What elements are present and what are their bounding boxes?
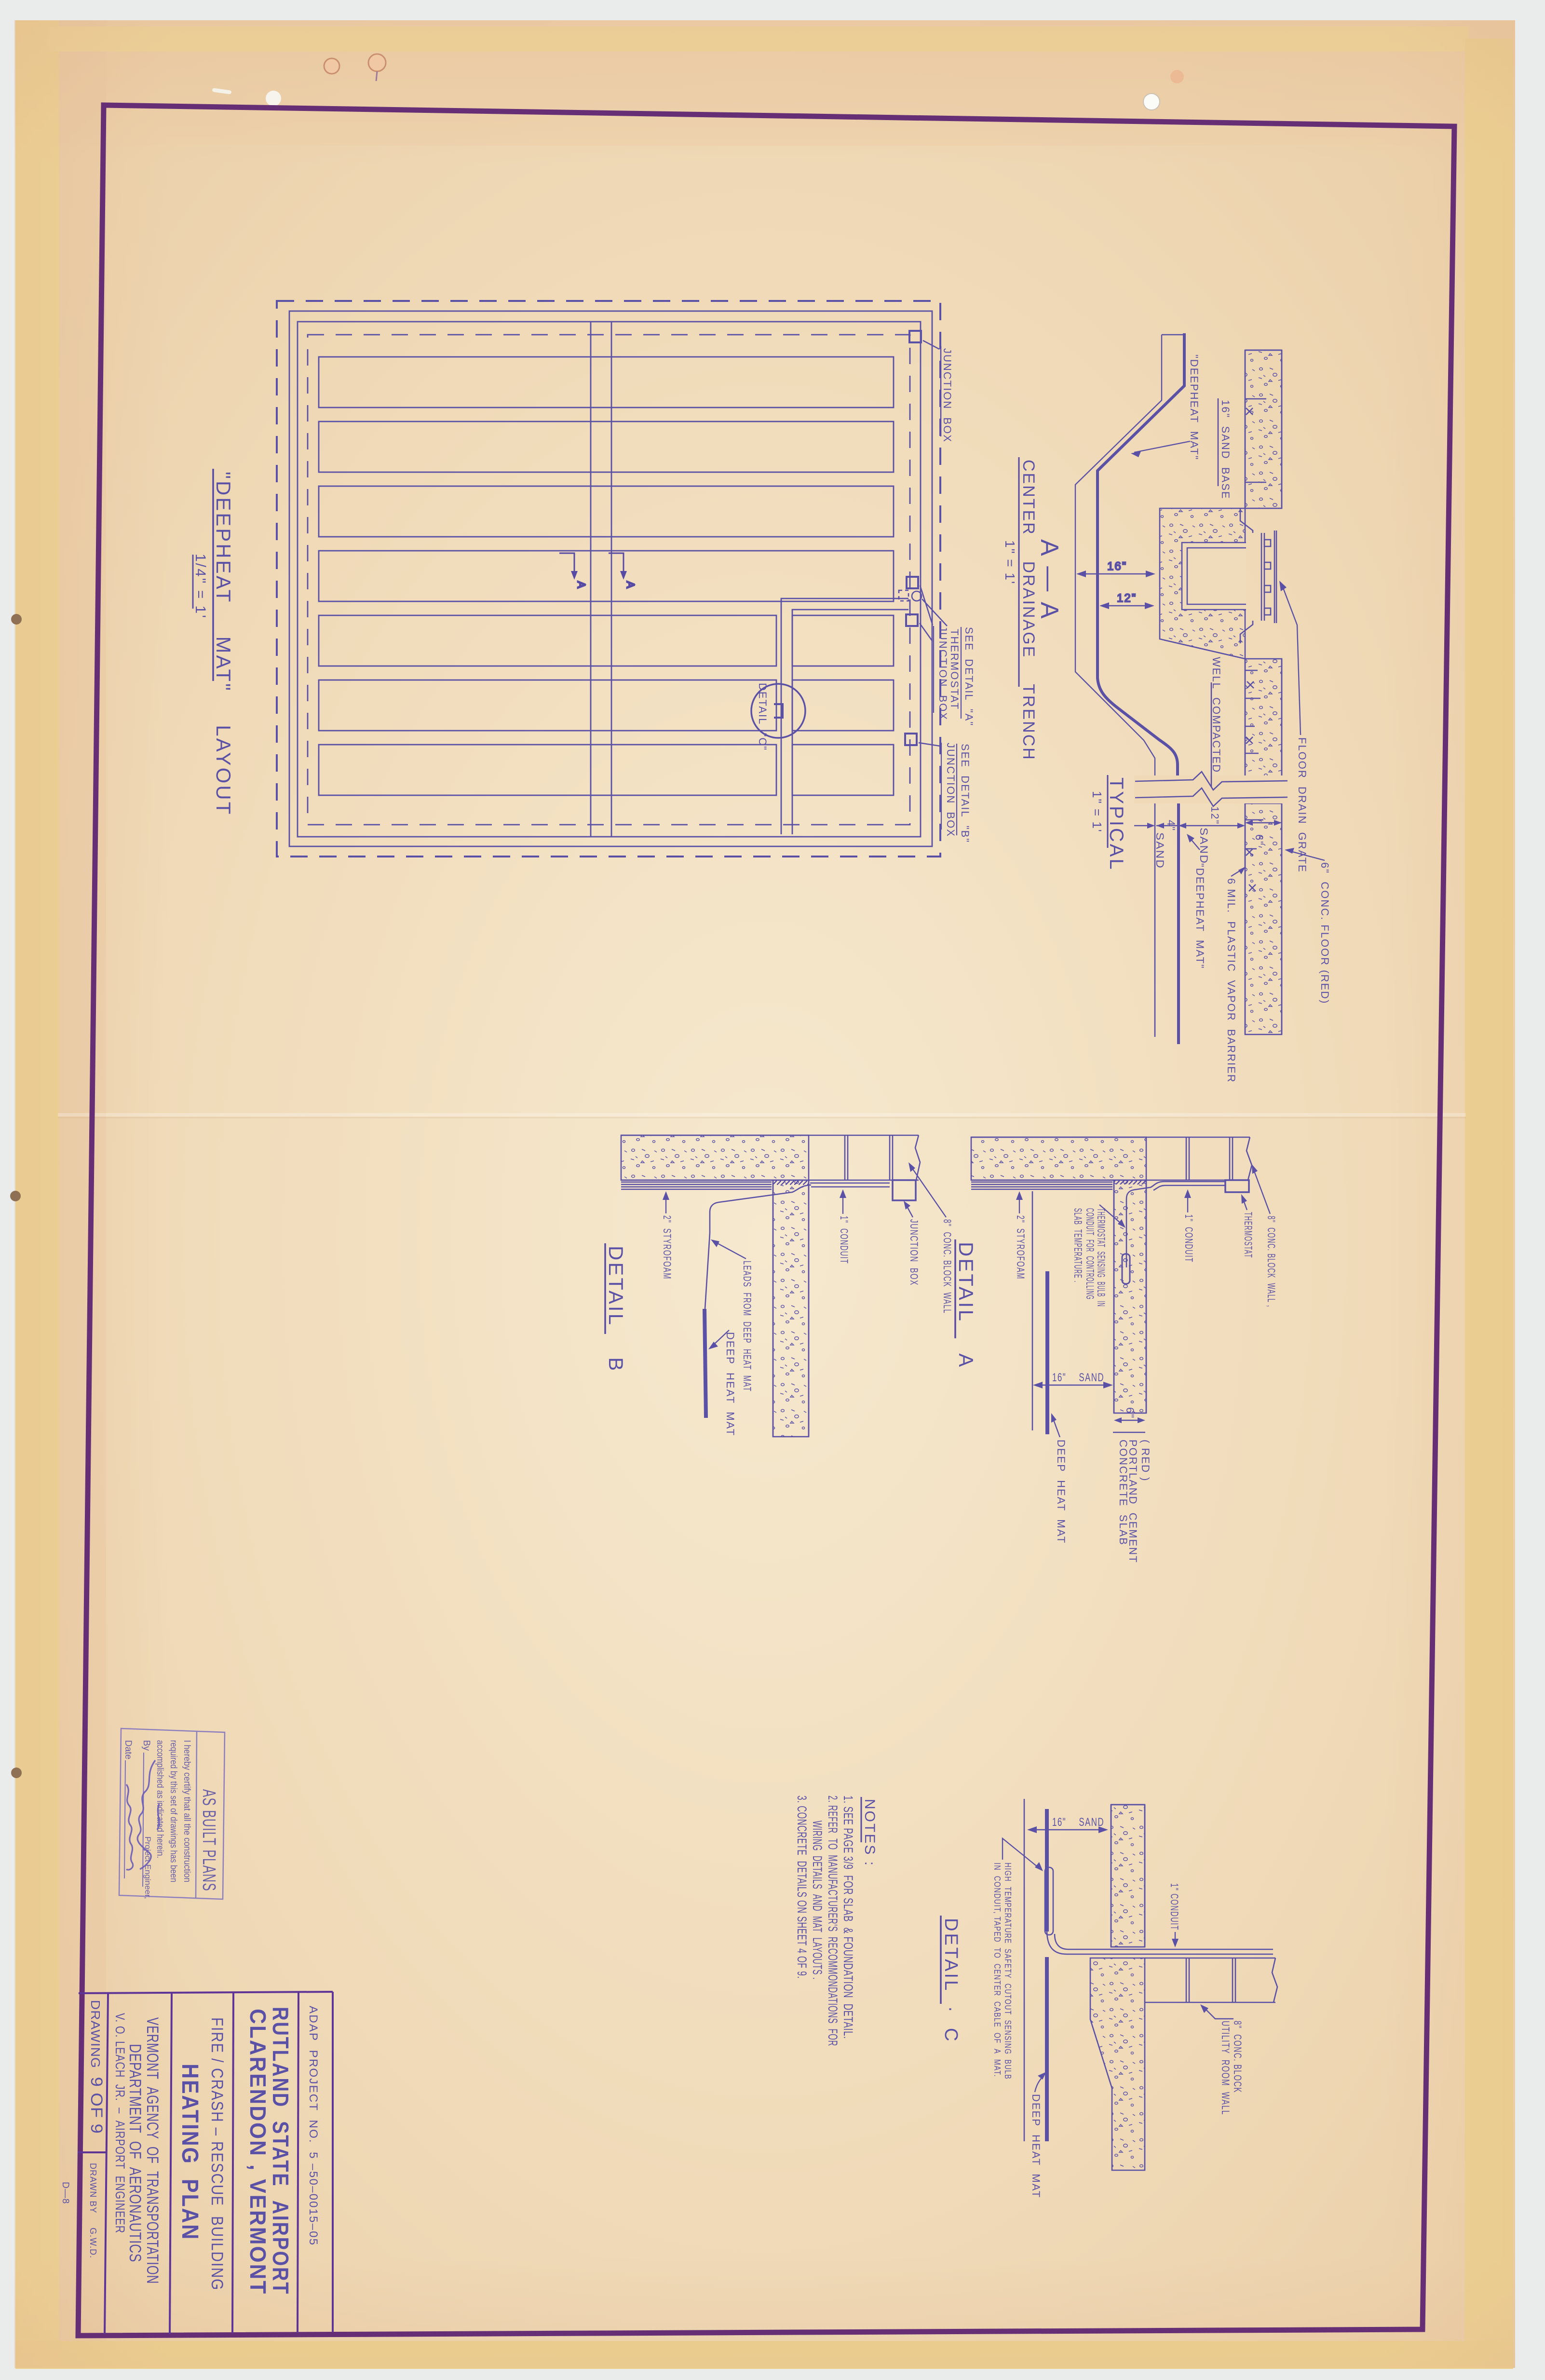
svg-text:VERMONT AGENCY OF TRANSPORT: VERMONT AGENCY OF TRANSPORTATION [143, 2017, 162, 2284]
svg-text:1/4" = 1': 1/4" = 1' [192, 554, 208, 619]
svg-text:DEEP HEAT MAT: DEEP HEAT MAT [724, 1332, 736, 1436]
svg-text:1" CONDUIT: 1" CONDUIT [1183, 1214, 1195, 1263]
svg-text:DETAIL "C": DETAIL "C" [757, 683, 769, 751]
svg-text:A: A [575, 581, 587, 589]
svg-text:2. REFER TO MANUFACTURER'S: 2. REFER TO MANUFACTURER'S RECOMMONDATIO… [826, 1795, 840, 2046]
svg-text:16" SAND: 16" SAND [1052, 1816, 1104, 1829]
svg-text:NOTES :: NOTES : [862, 1799, 878, 1867]
svg-text:DRAWING 9 OF 9: DRAWING 9 OF 9 [87, 2000, 106, 2134]
svg-text:SEE DETAIL "A": SEE DETAIL "A" [963, 627, 975, 726]
svg-text:DETAIL · C: DETAIL · C [941, 1918, 961, 2043]
svg-text:DEPARTMENT OF AERONAUTICS: DEPARTMENT OF AERONAUTICS [126, 2044, 144, 2262]
svg-text:16" SAND: 16" SAND [1052, 1371, 1104, 1384]
svg-text:"DEEPHEAT MAT" LAYOUT: "DEEPHEAT MAT" LAYOUT [212, 472, 235, 816]
svg-text:D—8: D—8 [60, 2182, 70, 2204]
svg-text:12": 12" [1117, 592, 1137, 605]
svg-text:3. CONCRETE DETAILS ON SHEET: 3. CONCRETE DETAILS ON SHEET 4 OF 9. [795, 1795, 809, 1979]
svg-text:4": 4" [1165, 820, 1177, 831]
svg-text:DEEP HEAT MAT: DEEP HEAT MAT [1055, 1440, 1067, 1544]
svg-text:WIRING DETAILS AND MAT LAY: WIRING DETAILS AND MAT LAYOUTS . [810, 1821, 825, 1980]
svg-text:1" = 1': 1" = 1' [1090, 791, 1104, 833]
svg-text:6": 6" [1253, 834, 1265, 846]
svg-text:UTILITY ROOM WALL: UTILITY ROOM WALL [1220, 2021, 1232, 2115]
svg-text:WELL COMPACTED: WELL COMPACTED [1210, 657, 1222, 773]
svg-text:1" = 1': 1" = 1' [1003, 540, 1017, 585]
svg-text:RUTLAND STATE AIRPORT: RUTLAND STATE AIRPORT [268, 2007, 293, 2295]
svg-text:DRAWN BY: DRAWN BY [88, 2163, 98, 2213]
svg-text:accomplished as indicated here: accomplished as indicated herein. [155, 1740, 165, 1858]
svg-text:DETAIL B: DETAIL B [605, 1246, 627, 1373]
svg-text:ADAP PROJECT NO. 5 –50–0015: ADAP PROJECT NO. 5 –50–0015–05 [307, 2006, 320, 2246]
svg-text:By: By [141, 1740, 151, 1751]
svg-text:SLAB TEMPERATURE .: SLAB TEMPERATURE . [1072, 1208, 1084, 1283]
svg-text:CONDUIT FOR CONTROLLING: CONDUIT FOR CONTROLLING [1084, 1208, 1096, 1300]
svg-text:16": 16" [1107, 560, 1127, 573]
svg-text:CONCRETE SLAB: CONCRETE SLAB [1117, 1440, 1129, 1546]
svg-text:SEE DETAIL "B": SEE DETAIL "B" [959, 744, 971, 843]
svg-text:LEADS FROM DEEP HEAT MAT: LEADS FROM DEEP HEAT MAT [741, 1261, 753, 1392]
svg-text:HIGH TEMPERATURE SAFETY CUT: HIGH TEMPERATURE SAFETY CUTOUT SENSING B… [1003, 1863, 1013, 2080]
svg-text:FLOOR DRAIN GRATE: FLOOR DRAIN GRATE [1296, 737, 1308, 873]
svg-text:CLARENDON , VERMONT: CLARENDON , VERMONT [245, 2009, 271, 2295]
svg-text:JUNCTION BOX: JUNCTION BOX [908, 1219, 920, 1286]
svg-text:THERMOSTAT SENSING BULB IN: THERMOSTAT SENSING BULB IN [1095, 1208, 1107, 1307]
svg-text:2" STYROFOAM: 2" STYROFOAM [661, 1215, 673, 1279]
svg-text:THERMOSTAT: THERMOSTAT [1242, 1212, 1254, 1258]
svg-text:FIRE / CRASH – RESCUE BUILDIN: FIRE / CRASH – RESCUE BUILDING [208, 2017, 226, 2291]
svg-text:8" CONC. BLOCK: 8" CONC. BLOCK [1232, 2021, 1244, 2093]
svg-text:required by this set of drawin: required by this set of drawings has bee… [168, 1740, 178, 1882]
svg-text:6": 6" [1124, 1407, 1136, 1419]
svg-text:8" CONC. BLOCK WALL ,: 8" CONC. BLOCK WALL , [1265, 1216, 1277, 1307]
svg-text:HEATING PLAN: HEATING PLAN [177, 2064, 203, 2241]
svg-text:Project Engineer,: Project Engineer, [143, 1836, 152, 1899]
svg-text:G.W.D.: G.W.D. [88, 2228, 98, 2258]
svg-text:IN CONDUIT, TAPED TO CENTER: IN CONDUIT, TAPED TO CENTER CABLE OF A M… [992, 1863, 1002, 2077]
svg-text:I hereby certify that all the: I hereby certify that all the constructi… [182, 1740, 192, 1882]
svg-text:( RED ): ( RED ) [1139, 1440, 1152, 1482]
svg-text:A: A [624, 581, 637, 589]
svg-text:SAND: SAND [1154, 832, 1166, 869]
svg-text:V. O. LEACH JR. – AIRPORT: V. O. LEACH JR. – AIRPORT ENGINEER [113, 2013, 127, 2233]
svg-text:1" CONDUIT: 1" CONDUIT [1168, 1883, 1180, 1931]
svg-text:DEEP HEAT MAT: DEEP HEAT MAT [1030, 2094, 1042, 2198]
svg-text:12": 12" [1209, 806, 1221, 825]
svg-text:Date: Date [123, 1740, 133, 1759]
svg-text:"DEEPHEAT MAT": "DEEPHEAT MAT" [1188, 354, 1200, 461]
svg-text:SAND: SAND [1198, 828, 1210, 864]
svg-text:CENTER DRAINAGE TRENCH: CENTER DRAINAGE TRENCH [1019, 460, 1038, 761]
svg-text:JUNCTION BOX: JUNCTION BOX [941, 348, 953, 443]
svg-text:6" CONC. FLOOR (RED): 6" CONC. FLOOR (RED) [1319, 862, 1331, 1004]
svg-text:16" SAND BASE: 16" SAND BASE [1220, 400, 1232, 500]
svg-text:JUNCTION BOX: JUNCTION BOX [937, 626, 949, 721]
svg-text:THERMOSTAT: THERMOSTAT [949, 629, 961, 710]
svg-text:6 MIL. PLASTIC VAPOR BARRIE: 6 MIL. PLASTIC VAPOR BARRIER [1225, 878, 1237, 1083]
svg-text:A — A: A — A [1035, 539, 1063, 621]
svg-text:8" CONC. BLOCK WALL: 8" CONC. BLOCK WALL [941, 1219, 953, 1314]
svg-text:DETAIL A: DETAIL A [955, 1242, 977, 1369]
svg-text:JUNCTION BOX: JUNCTION BOX [945, 743, 957, 837]
svg-text:"DEEPHEAT MAT": "DEEPHEAT MAT" [1194, 863, 1206, 969]
svg-text:1. SEE PAGE 3/9 FOR SLAB & F: 1. SEE PAGE 3/9 FOR SLAB & FOUNDATION DE… [841, 1795, 855, 2039]
svg-text:1" CONDUIT: 1" CONDUIT [838, 1216, 850, 1264]
svg-text:TYPICAL: TYPICAL [1106, 777, 1127, 871]
svg-text:AS BUILT PLANS: AS BUILT PLANS [199, 1789, 219, 1891]
svg-text:2" STYROFOAM: 2" STYROFOAM [1015, 1215, 1027, 1279]
